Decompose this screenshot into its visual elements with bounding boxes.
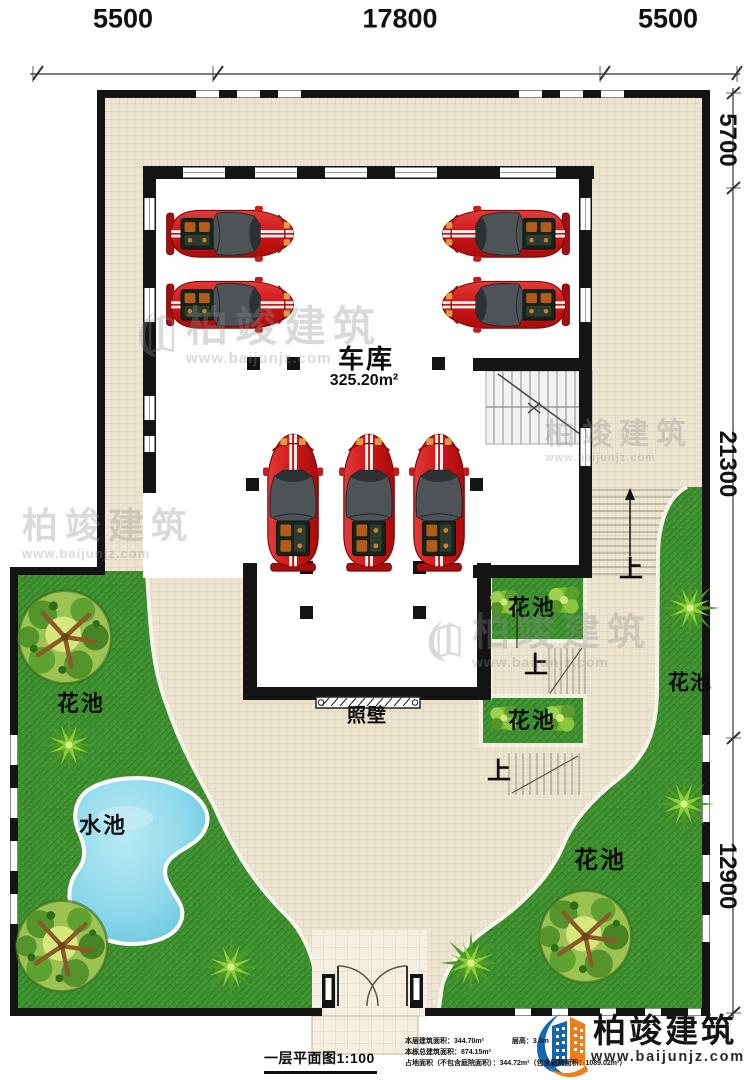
label-water-pool: 水池	[79, 815, 127, 837]
label-flower-bed-lower: 花池	[508, 710, 556, 732]
brand-logo-icon	[537, 1014, 588, 1077]
watermark-name: 柏竣建筑	[545, 420, 693, 450]
dim-top-center: 17800	[362, 6, 437, 33]
watermark-url: www.baijunjz.com	[22, 547, 194, 560]
watermark-name: 柏竣建筑	[186, 306, 382, 348]
watermark-url: www.baijunjz.com	[472, 655, 652, 669]
drawing-title: 一层平面图1:100	[264, 1048, 377, 1074]
watermark-logo-icon	[425, 617, 465, 667]
watermark: 柏竣建筑www.baijunjz.com	[545, 420, 693, 464]
stats-line-1: 本层建筑面积：344.70m² 层高：3.3m	[405, 1038, 549, 1045]
watermark-logo-icon	[135, 309, 179, 363]
floor-plan: 5500 17800 5500 5700 21300 12900 车库 325.…	[0, 0, 750, 1080]
tree-icon	[539, 891, 632, 983]
stat-floor-area: 本层建筑面积：344.70m²	[405, 1038, 484, 1045]
watermark: 柏竣建筑www.baijunjz.com	[22, 508, 194, 560]
label-up-east: 上	[619, 558, 643, 582]
watermark-name: 柏竣建筑	[472, 614, 652, 652]
label-flower-bed-left: 花池	[57, 693, 105, 715]
dim-right-upper: 5700	[715, 113, 739, 166]
dim-top-right: 5500	[638, 6, 698, 33]
label-flower-bed-bottom: 花池	[574, 849, 626, 873]
watermark: 柏竣建筑www.baijunjz.com	[425, 614, 652, 669]
dim-top-left: 5500	[93, 6, 153, 33]
tree-icon	[16, 901, 108, 992]
dim-right-middle: 21300	[715, 431, 739, 498]
watermark-url: www.baijunjz.com	[545, 453, 693, 464]
dim-right-lower: 12900	[715, 843, 739, 910]
brand-name: 柏竣建筑	[593, 1014, 737, 1047]
label-up-lower: 上	[487, 760, 511, 784]
stat-total-area: 本栋总建筑面积：874.15m²	[405, 1049, 491, 1056]
stat-floor-height: 层高：3.3m	[512, 1038, 549, 1045]
watermark: 柏竣建筑www.baijunjz.com	[135, 306, 382, 366]
room-area-garage: 325.20m²	[330, 373, 399, 389]
watermark-name: 柏竣建筑	[22, 508, 194, 544]
watermark-url: www.baijunjz.com	[186, 351, 382, 366]
label-screen-wall: 照壁	[347, 707, 387, 726]
stats-line-2: 本栋总建筑面积：874.15m²	[405, 1049, 491, 1056]
label-flower-bed-right: 花池	[668, 673, 712, 694]
tree-icon	[18, 591, 112, 684]
brand-url: www.baijunjz.com	[591, 1050, 745, 1065]
